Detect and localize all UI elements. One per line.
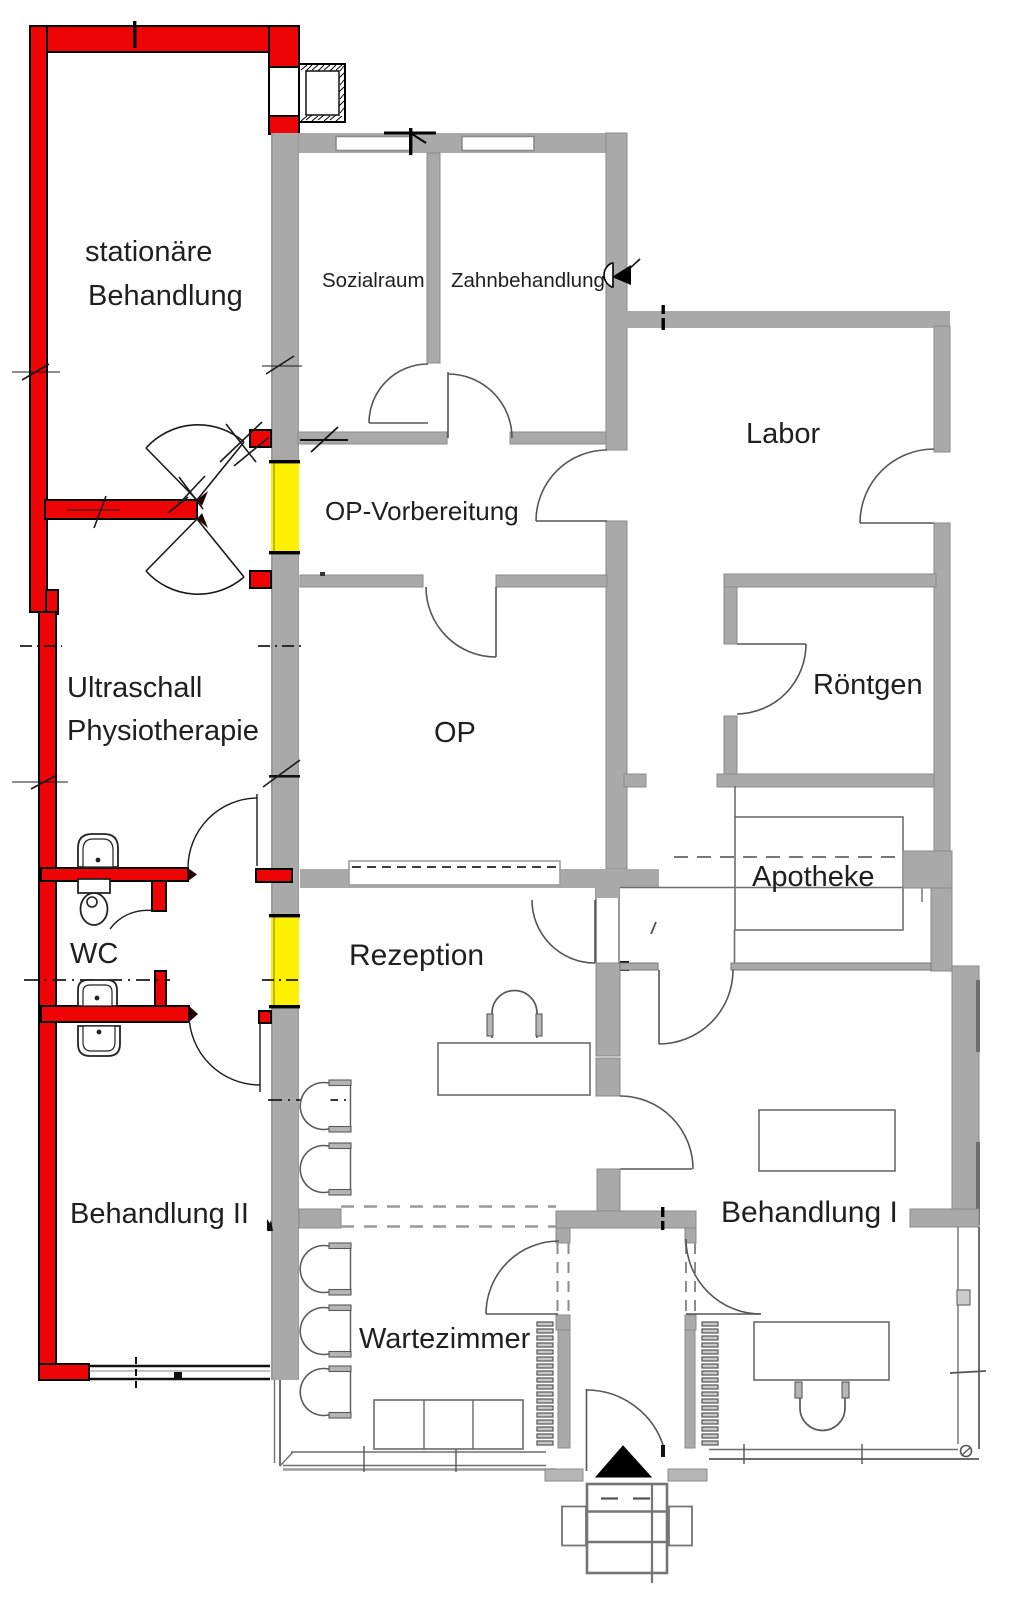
- svg-text:Behandlung I: Behandlung I: [721, 1196, 898, 1229]
- svg-text:Behandlung II: Behandlung II: [70, 1198, 249, 1230]
- svg-text:OP-Vorbereitung: OP-Vorbereitung: [325, 496, 519, 526]
- svg-text:Apotheke: Apotheke: [752, 861, 875, 893]
- svg-text:Physiotherapie: Physiotherapie: [67, 715, 259, 747]
- svg-text:Labor: Labor: [746, 418, 821, 450]
- svg-text:Ultraschall: Ultraschall: [67, 672, 202, 704]
- svg-text:Röntgen: Röntgen: [813, 669, 923, 701]
- svg-text:Zahnbehandlung: Zahnbehandlung: [451, 269, 605, 292]
- svg-text:Sozialraum: Sozialraum: [322, 269, 425, 292]
- svg-text:Wartezimmer: Wartezimmer: [359, 1323, 531, 1355]
- svg-text:Rezeption: Rezeption: [349, 939, 484, 972]
- svg-text:stationäre: stationäre: [85, 236, 212, 268]
- svg-text:Behandlung: Behandlung: [88, 280, 243, 312]
- svg-text:WC: WC: [70, 938, 118, 970]
- svg-text:OP: OP: [434, 717, 476, 749]
